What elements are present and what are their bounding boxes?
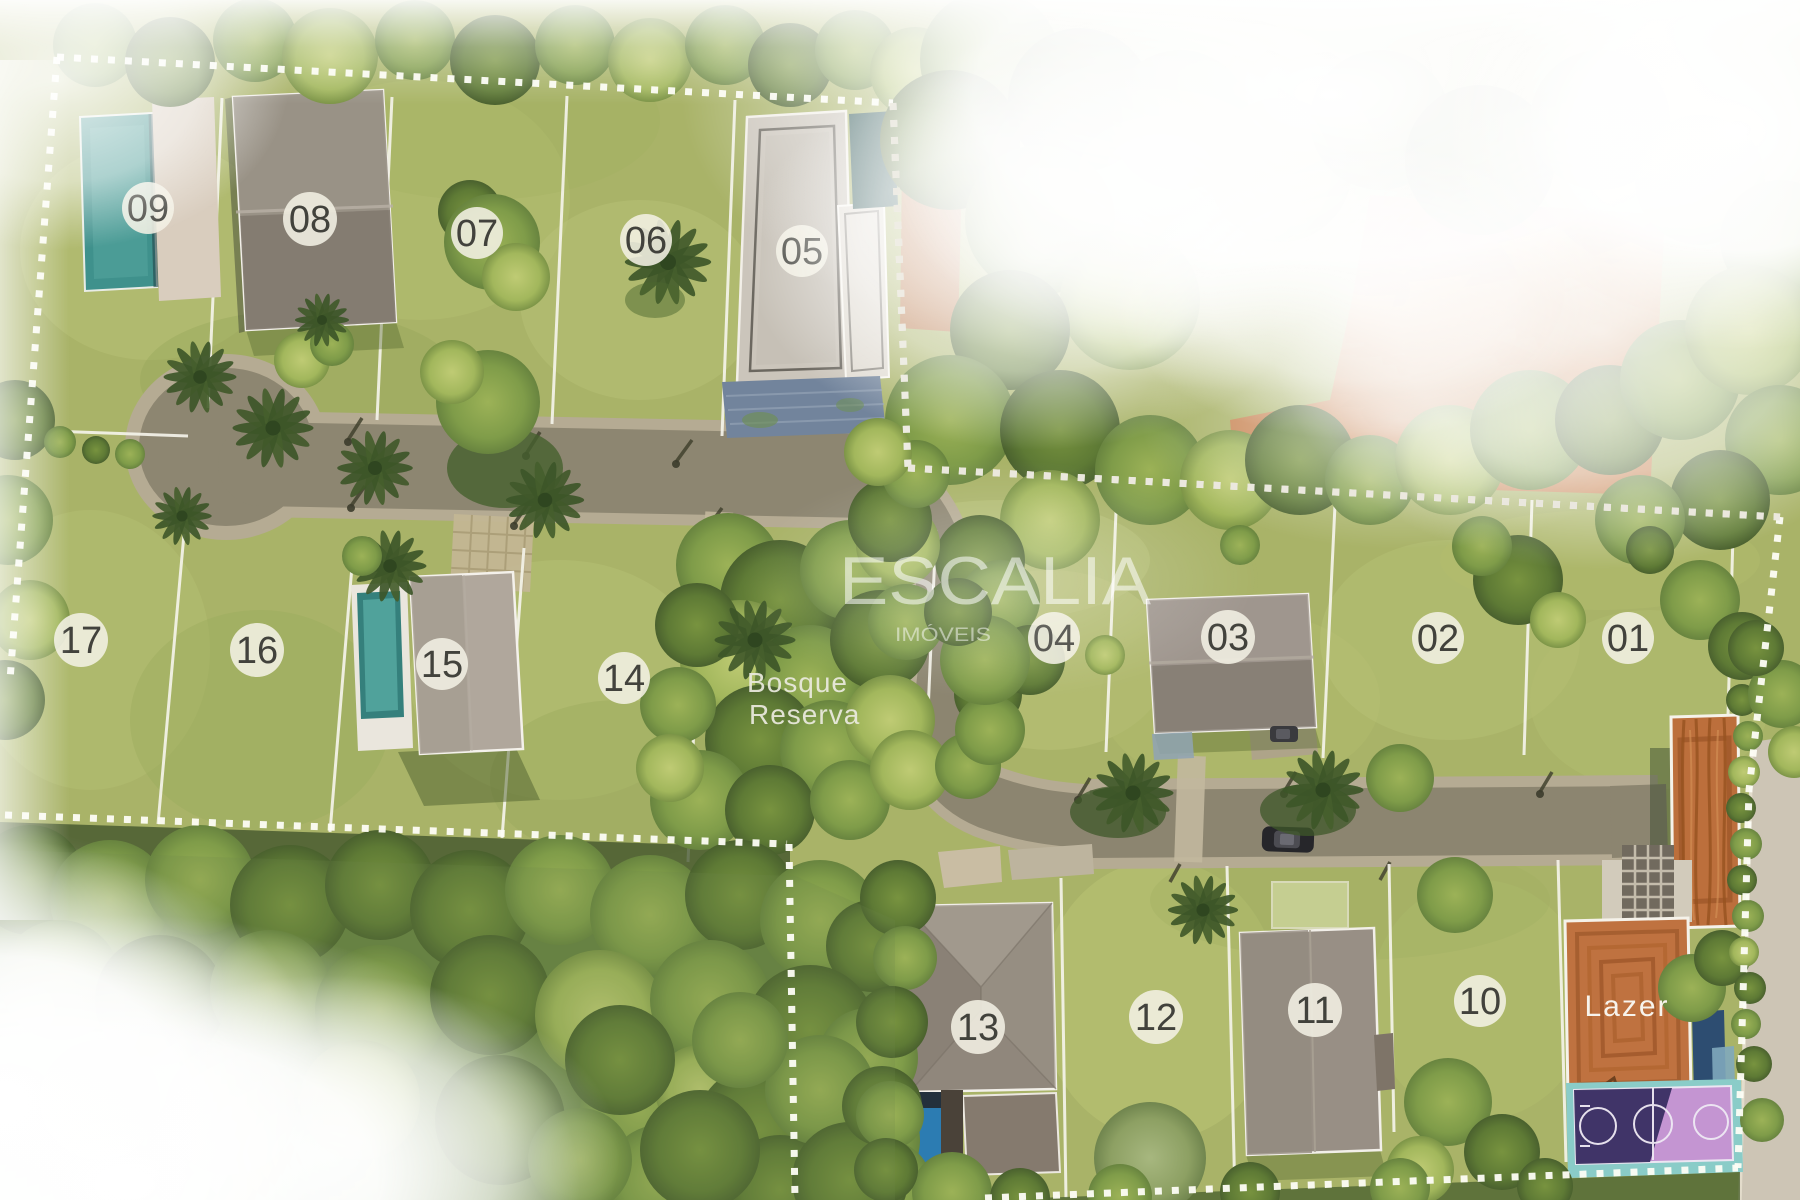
svg-text:13: 13	[957, 1007, 999, 1049]
svg-text:02: 02	[1417, 618, 1459, 660]
svg-text:01: 01	[1607, 618, 1649, 660]
svg-text:10: 10	[1459, 981, 1501, 1023]
svg-text:12: 12	[1135, 997, 1177, 1039]
svg-text:16: 16	[236, 630, 278, 672]
svg-text:07: 07	[456, 213, 498, 255]
svg-text:08: 08	[289, 199, 331, 241]
svg-text:11: 11	[1295, 990, 1334, 1032]
svg-text:15: 15	[421, 644, 463, 686]
svg-text:IMÓVEIS: IMÓVEIS	[895, 624, 991, 646]
svg-text:06: 06	[625, 220, 667, 262]
svg-text:ESCALIA: ESCALIA	[839, 543, 1152, 619]
svg-text:Reserva: Reserva	[749, 699, 860, 730]
svg-text:Lazer: Lazer	[1584, 990, 1669, 1023]
svg-text:14: 14	[603, 658, 645, 700]
